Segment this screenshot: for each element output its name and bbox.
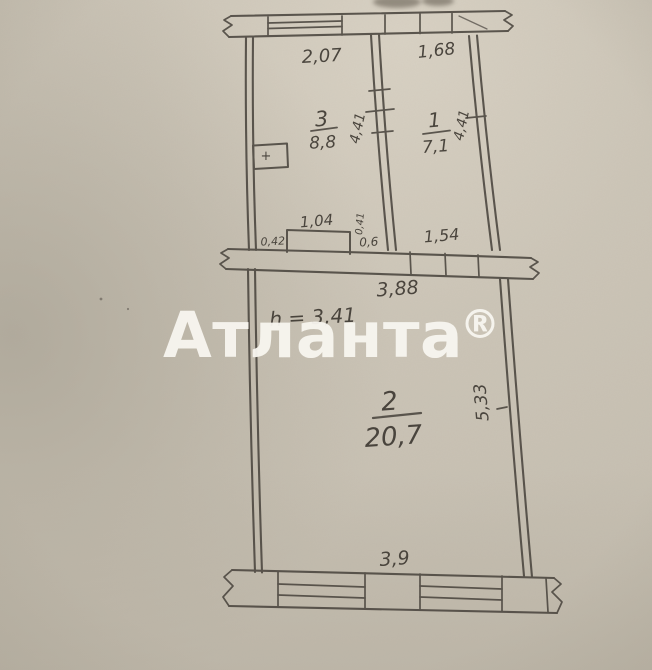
band-tick-3 [478, 255, 479, 277]
room2-depth: 5,33 [470, 383, 493, 422]
registered-trademark-icon: ® [460, 302, 500, 348]
dim-top-right: 1,68 [417, 39, 457, 63]
dim-niche-width: 0,6 [359, 234, 379, 249]
dim-top-left: 2,07 [301, 45, 343, 68]
dim-ledge-width: 1,04 [299, 211, 334, 232]
room3-number: 3 [314, 107, 329, 132]
band-tick-1 [410, 252, 411, 274]
dim-room2-width-bottom: 3,9 [379, 547, 411, 571]
room3-area: 8,8 [309, 132, 337, 153]
room2-number: 2 [380, 386, 399, 417]
dim-wall-offset: 0,42 [260, 234, 285, 248]
dim-opening-width: 1,54 [423, 225, 460, 247]
vent-plus-symbol: + [261, 149, 272, 164]
room1-area: 7,1 [421, 136, 449, 158]
room2-area: 20,7 [364, 420, 424, 454]
band-tick-2 [445, 254, 446, 276]
dim-niche-depth: 0,41 [354, 212, 367, 235]
watermark-brand-text: Атланта [163, 299, 463, 372]
room1-number: 1 [427, 108, 442, 133]
floor-plan-svg: 2,07 1,68 3 8,8 4,41 1 7,1 4,41 + 1,04 0… [0, 0, 652, 670]
dim-room2-width-top: 3,88 [376, 277, 420, 302]
watermark: Атланта ® [163, 299, 500, 372]
floor-plan-photo: 2,07 1,68 3 8,8 4,41 1 7,1 4,41 + 1,04 0… [0, 0, 652, 670]
